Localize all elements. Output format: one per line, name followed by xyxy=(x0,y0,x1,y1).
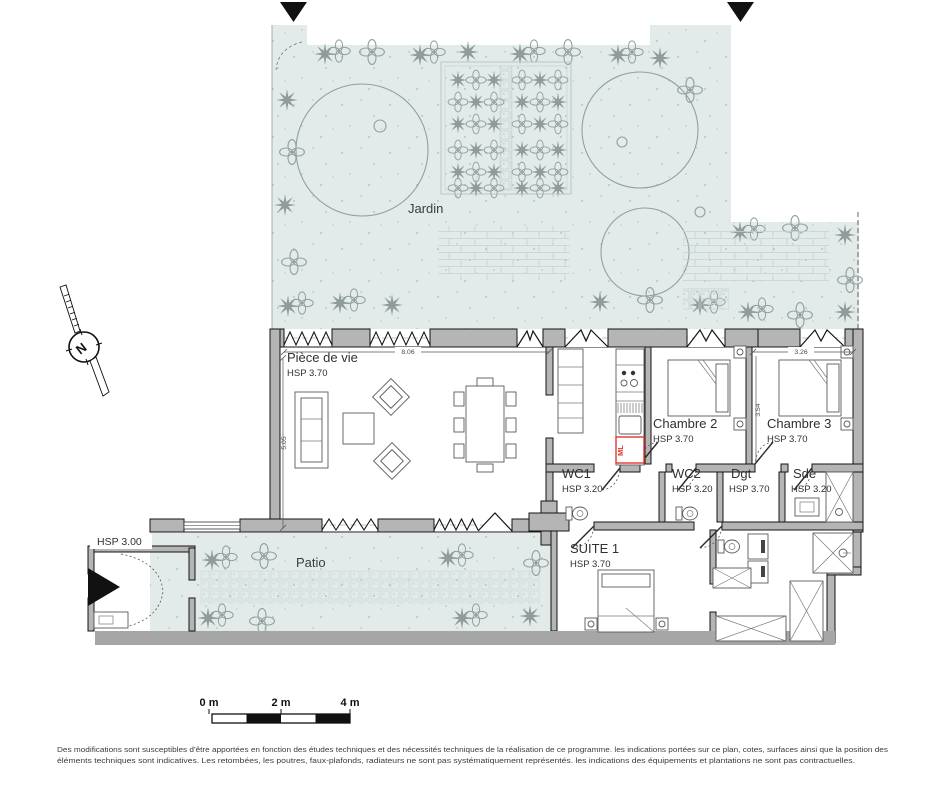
north-compass: N xyxy=(60,285,109,396)
toilet-wc1 xyxy=(566,507,588,520)
room-label-dgt: Dgt xyxy=(731,466,752,481)
floor-plan-drawing: Jardin Patio xyxy=(0,0,943,800)
garden-label: Jardin xyxy=(408,201,443,216)
nightstand xyxy=(734,418,746,430)
kitchen-cabinet-column xyxy=(558,349,583,433)
room-label-suite1: SUITE 1 xyxy=(570,541,619,556)
room-label-wc1: WC1 xyxy=(562,466,591,481)
room-hsp-living: HSP 3.70 xyxy=(287,368,328,379)
sde-sink xyxy=(795,498,819,516)
disclaimer-line-2: éléments techniques sont indicatives. Le… xyxy=(57,758,855,765)
room-hsp-dgt: HSP 3.70 xyxy=(729,484,770,495)
dim-chambre3-width: 3.26 xyxy=(794,349,807,356)
entry-arrow-top-right xyxy=(727,2,754,22)
brick-path-right xyxy=(683,230,829,282)
kitchen-sink xyxy=(619,416,641,434)
suite-wardrobe-right xyxy=(790,581,823,641)
room-hsp-chambre2: HSP 3.70 xyxy=(653,434,694,445)
toilet-suite xyxy=(718,540,740,553)
room-label-chambre3: Chambre 3 xyxy=(767,416,831,431)
washing-machine-label: ML xyxy=(616,445,625,456)
patio-label: Patio xyxy=(296,555,326,570)
bedside-stool xyxy=(656,618,668,630)
dim-living-width: 8.06 xyxy=(401,349,414,356)
toilet-wc2 xyxy=(676,507,698,520)
sde-shower xyxy=(826,472,853,522)
nightstand xyxy=(734,346,746,358)
dining-table xyxy=(454,378,516,472)
room-hsp-suite1: HSP 3.70 xyxy=(570,559,611,570)
scale-label-2: 2 m xyxy=(272,697,291,709)
bed-suite1 xyxy=(598,570,654,632)
scale-bar: 0 m 2 m 4 m xyxy=(200,697,360,723)
room-label-sde: Sde xyxy=(793,466,816,481)
suite-wardrobe-small xyxy=(713,568,751,588)
bedside-stool xyxy=(585,618,597,630)
brick-path-center xyxy=(438,226,570,280)
patio-area: Patio xyxy=(150,533,557,633)
scale-label-0: 0 m xyxy=(200,697,219,709)
nightstand xyxy=(841,418,853,430)
room-label-living: Pièce de vie xyxy=(287,350,358,365)
room-hsp-wc2: HSP 3.20 xyxy=(672,484,713,495)
garden-area: Jardin xyxy=(272,25,862,331)
floor-plan-page: Jardin Patio xyxy=(0,0,943,800)
room-label-wc2: WC2 xyxy=(672,466,701,481)
scale-label-4: 4 m xyxy=(341,697,360,709)
coffee-table xyxy=(343,413,374,444)
dim-chambre-depth: 3.54 xyxy=(755,403,762,416)
dim-living-depth: 5.05 xyxy=(281,436,288,449)
disclaimer-line-1: Des modifications sont susceptibles d'êt… xyxy=(57,747,889,754)
room-hsp-sde: HSP 3.20 xyxy=(791,484,832,495)
bed-chambre2 xyxy=(668,360,730,416)
suite-shower xyxy=(813,533,853,573)
utility-box xyxy=(94,612,128,628)
room-hsp-chambre3: HSP 3.70 xyxy=(767,434,808,445)
suite-wardrobe-low xyxy=(716,616,786,641)
paved-area-right xyxy=(683,288,729,310)
entry-arrow-top-left xyxy=(280,2,307,22)
room-label-chambre2: Chambre 2 xyxy=(653,416,717,431)
bed-chambre3 xyxy=(779,360,841,416)
washing-machine: ML xyxy=(616,437,644,463)
sofa xyxy=(295,392,328,468)
entry-arrow-left xyxy=(88,568,120,606)
room-hsp-wc1: HSP 3.20 xyxy=(562,484,603,495)
hsp-exterior-label: HSP 3.00 xyxy=(97,536,142,548)
